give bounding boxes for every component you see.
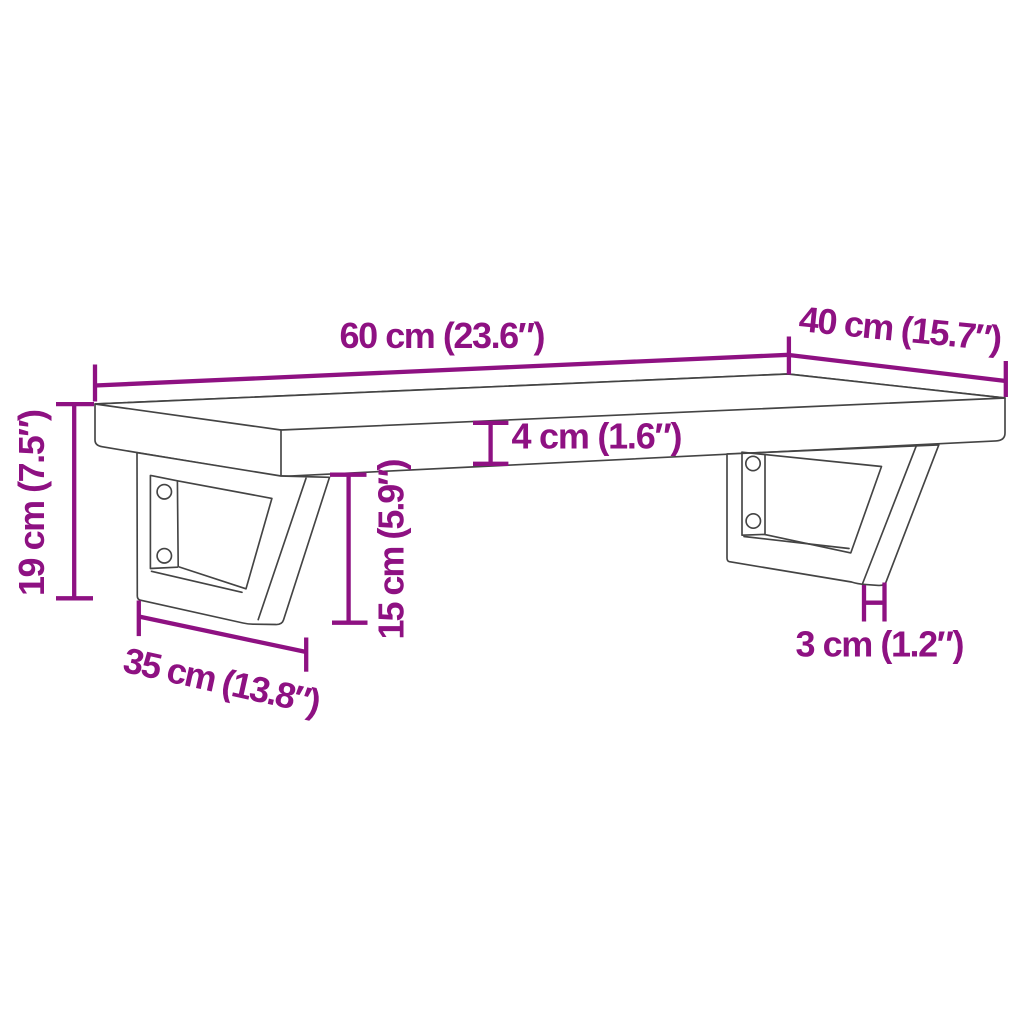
svg-text:40 cm (15.7″): 40 cm (15.7″) [797,298,1004,359]
svg-text:35 cm (13.8″): 35 cm (13.8″) [120,639,325,723]
svg-text:19 cm (7.5″): 19 cm (7.5″) [11,409,52,596]
svg-text:15 cm (5.9″): 15 cm (5.9″) [371,459,412,640]
svg-text:60 cm (23.6″): 60 cm (23.6″) [340,315,546,356]
svg-text:3 cm (1.2″): 3 cm (1.2″) [796,624,965,665]
svg-text:4 cm (1.6″): 4 cm (1.6″) [512,416,683,457]
